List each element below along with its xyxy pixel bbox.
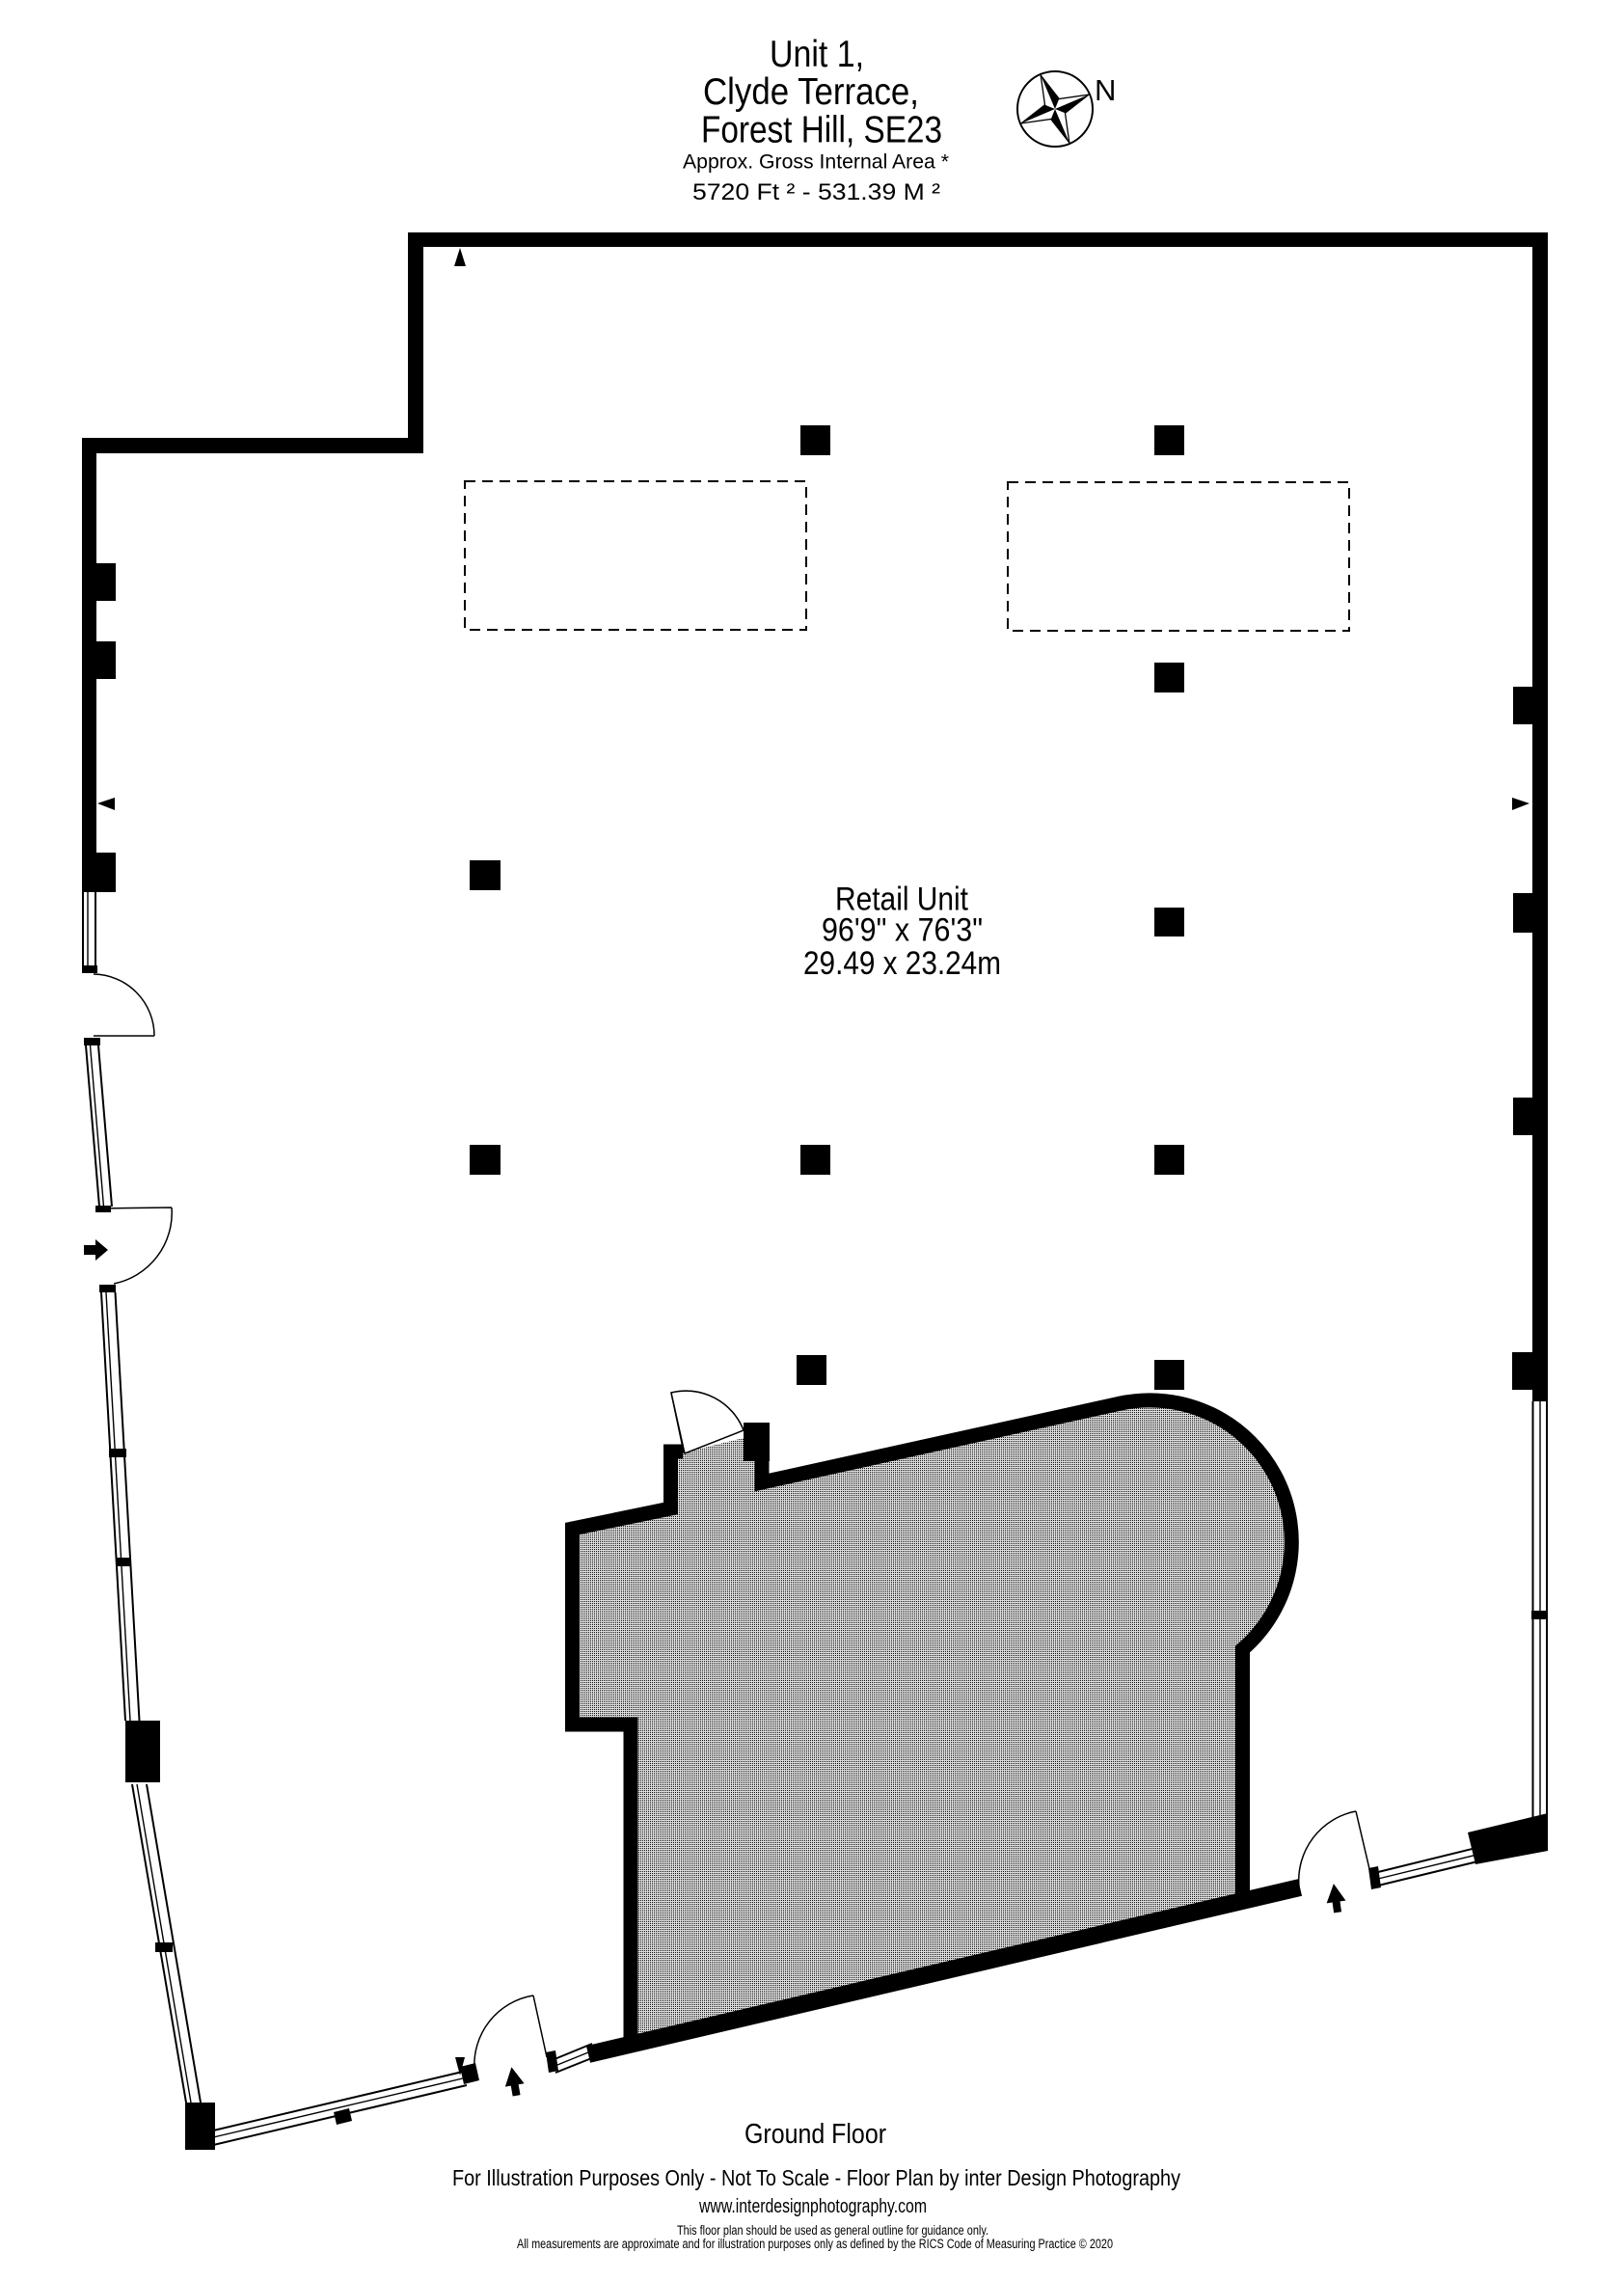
svg-text:All measurements are approxima: All measurements are approximate and for… xyxy=(517,2237,1113,2251)
svg-text:Ground Floor: Ground Floor xyxy=(744,2119,886,2150)
svg-text:N: N xyxy=(1095,73,1116,107)
svg-text:Forest Hill, SE23: Forest Hill, SE23 xyxy=(701,110,942,151)
svg-text:Unit 1,: Unit 1, xyxy=(770,34,864,75)
svg-text:96'9" x 76'3": 96'9" x 76'3" xyxy=(822,912,983,949)
svg-text:Approx. Gross Internal Area *: Approx. Gross Internal Area * xyxy=(683,151,949,174)
svg-text:29.49 x 23.24m: 29.49 x 23.24m xyxy=(803,945,1001,982)
svg-text:www.interdesignphotography.com: www.interdesignphotography.com xyxy=(698,2196,927,2217)
svg-text:For Illustration Purposes Only: For Illustration Purposes Only - Not To … xyxy=(452,2165,1180,2190)
svg-text:This floor plan should be used: This floor plan should be used as genera… xyxy=(677,2223,988,2238)
svg-text:5720 Ft ² - 531.39 M ²: 5720 Ft ² - 531.39 M ² xyxy=(692,179,940,205)
svg-text:Clyde Terrace,: Clyde Terrace, xyxy=(703,71,919,113)
